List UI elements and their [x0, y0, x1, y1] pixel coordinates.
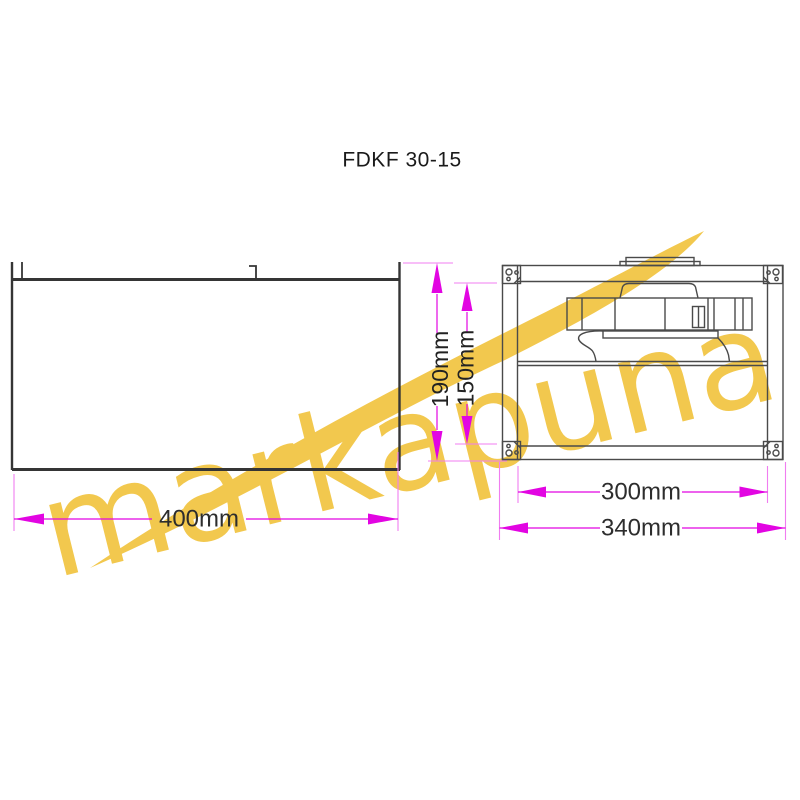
flange-tab: [249, 266, 256, 279]
dimension-label-side-length: 400mm: [159, 506, 239, 533]
arrow-up: [462, 283, 473, 311]
dimension-outer-width: 340mm: [500, 515, 786, 542]
page-title: FDKF 30-15: [342, 149, 461, 172]
arrow-up: [432, 263, 443, 293]
watermark-layer: markapuna: [25, 231, 791, 609]
corner-plate-bottom-right: [764, 442, 783, 460]
arrow-right: [740, 487, 768, 498]
dimension-label-inner-height: 150mm: [453, 330, 479, 407]
dimension-label-inner-width: 300mm: [601, 479, 681, 506]
arrow-right: [757, 523, 786, 534]
technical-drawing: markapuna FDKF 30-15: [0, 0, 800, 800]
watermark-text: markapuna: [25, 278, 791, 609]
dimension-label-outer-width: 340mm: [601, 515, 681, 542]
arrow-left: [14, 514, 44, 525]
arrow-left: [500, 523, 529, 534]
dimension-label-outer-height: 190mm: [427, 331, 453, 408]
corner-plate-top-right: [764, 266, 783, 284]
